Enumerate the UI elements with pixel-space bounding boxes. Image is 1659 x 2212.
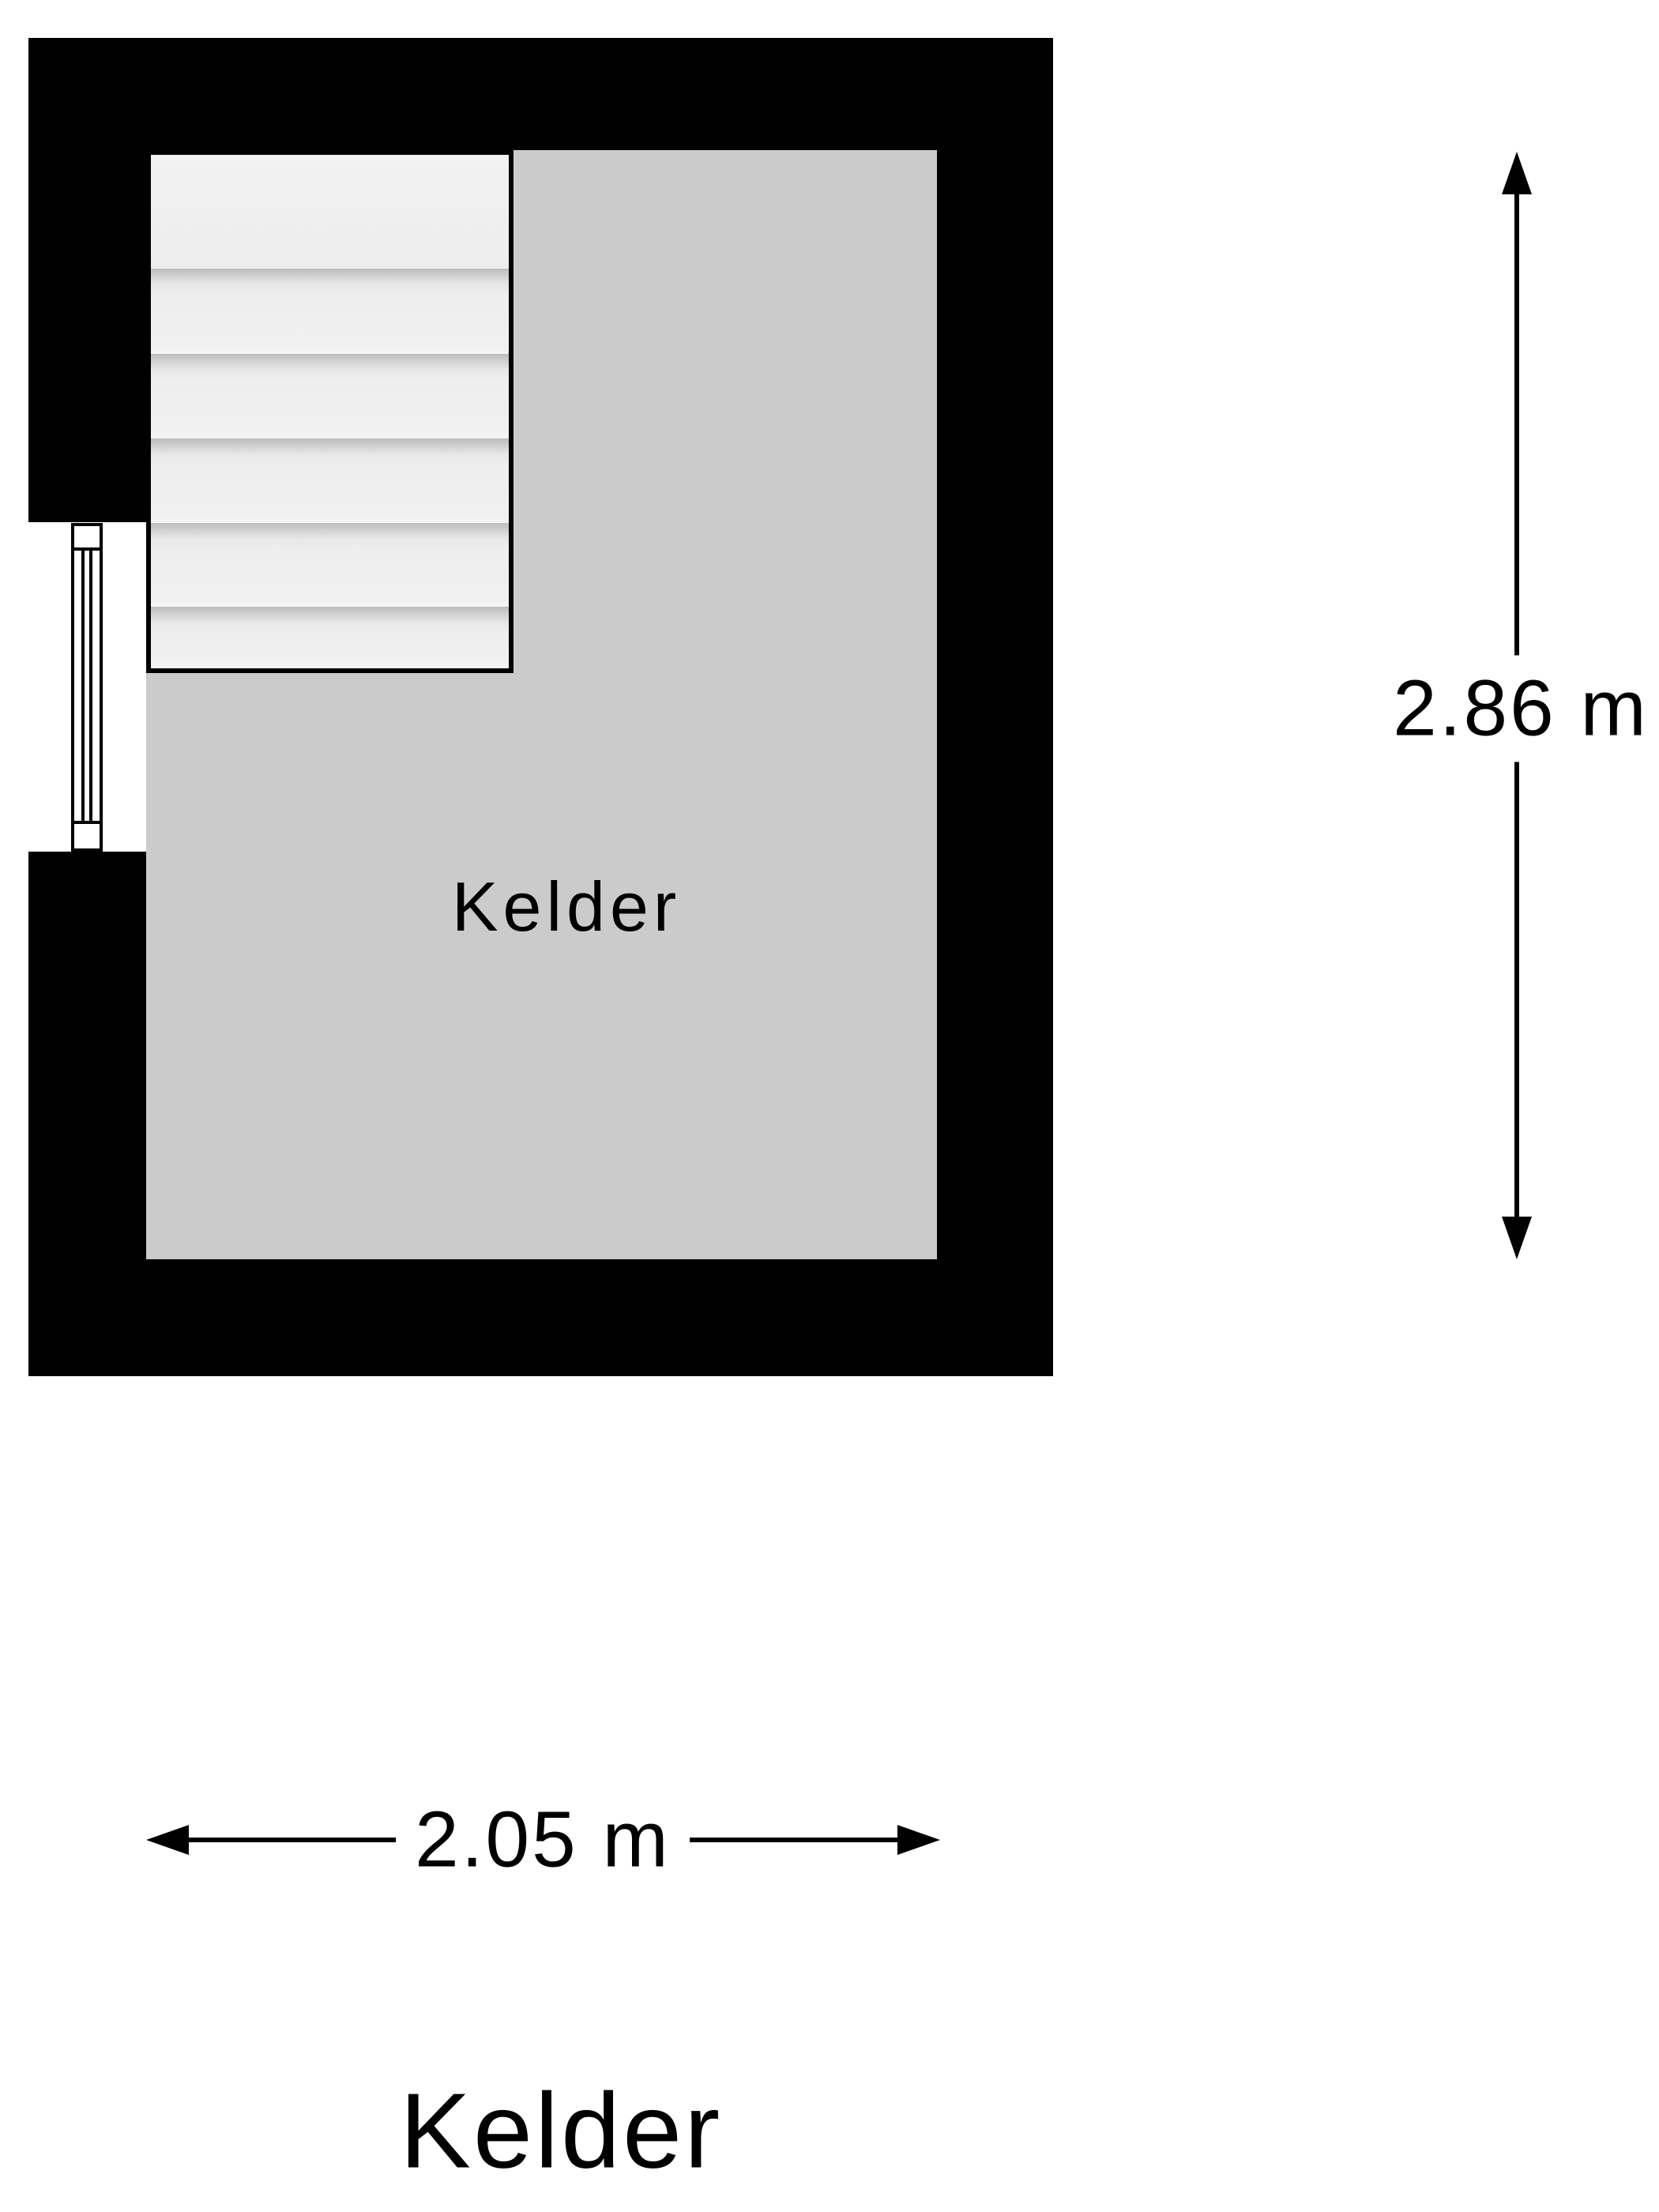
stair-tread — [151, 607, 509, 668]
arrow-left-icon — [146, 1825, 189, 1855]
arrow-down-icon — [1502, 1217, 1532, 1259]
window-icon — [71, 523, 103, 852]
plan-title: Kelder — [400, 2070, 722, 2192]
stair-tread — [151, 438, 509, 523]
window-frame-top — [74, 526, 100, 551]
stair-tread — [151, 269, 509, 354]
stair-tread — [151, 523, 509, 607]
window-glazing — [74, 551, 100, 821]
staircase — [146, 150, 513, 673]
vertical-dimension-label: 2.86 m — [1382, 656, 1659, 762]
stair-tread — [151, 155, 509, 269]
arrow-right-icon — [897, 1825, 940, 1855]
stair-tread — [151, 354, 509, 438]
window-frame-bottom — [74, 821, 100, 848]
arrow-up-icon — [1502, 152, 1532, 194]
horizontal-dimension-label: 2.05 m — [396, 1787, 690, 1894]
room-label: Kelder — [452, 867, 681, 947]
floorplan-canvas: Kelder 2.86 m 2.05 m Kelder — [0, 0, 1659, 2212]
